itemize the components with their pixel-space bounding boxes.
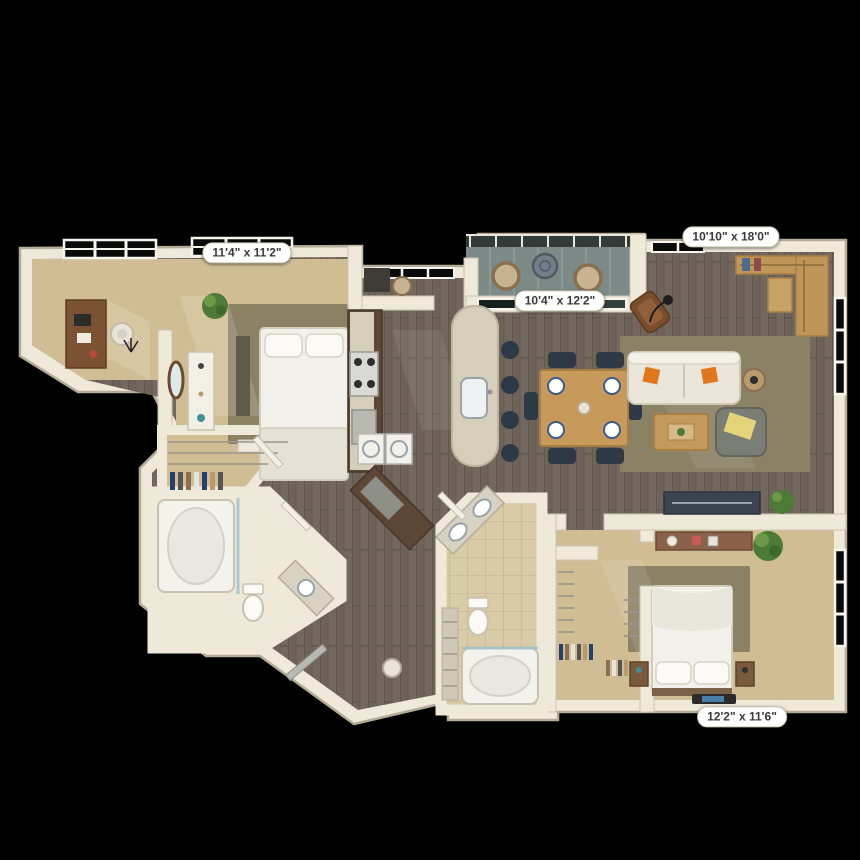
place-setting [604, 422, 620, 438]
laptop-on-floor [692, 694, 736, 704]
throw-pillow [701, 367, 718, 384]
armchair [716, 408, 766, 456]
place-setting [604, 378, 620, 394]
floor-plan-canvas: 11'4" x 11'2" 10'10" x 18'0" 10'4" x 12'… [0, 0, 860, 860]
dimension-label-bedroom-1: 11'4" x 11'2" [202, 242, 291, 263]
potted-plant [202, 293, 228, 319]
nightstand [630, 662, 648, 686]
dresser [656, 532, 752, 550]
dining-chair [548, 352, 576, 368]
dining-chair [596, 448, 624, 464]
bathtub [158, 498, 238, 594]
pillow [265, 334, 302, 357]
wall-closet-top [556, 546, 598, 560]
bar-stool [501, 376, 519, 394]
linen-shelves [442, 608, 458, 700]
wall-living-bedroom2-stub [556, 514, 566, 530]
desk [768, 278, 792, 312]
palm-plant [753, 531, 783, 561]
place-setting [548, 378, 564, 394]
office-window [64, 240, 156, 258]
sink [461, 378, 487, 418]
bench [236, 336, 250, 416]
bathtub [462, 648, 538, 704]
dining-chair [548, 448, 576, 464]
sofa [628, 352, 740, 404]
living-room-right-window [835, 298, 845, 394]
dining-chair [524, 392, 538, 420]
balcony-chair [493, 263, 519, 289]
bar-stool [501, 411, 519, 429]
pillow [306, 334, 343, 357]
pillow [694, 662, 729, 684]
floor-plan-render [0, 0, 860, 860]
potted-plant [770, 490, 794, 514]
stove [350, 352, 378, 396]
toilet [243, 584, 263, 621]
nook-cabinet [364, 268, 390, 292]
papers [77, 333, 91, 343]
toilet [468, 598, 488, 635]
throw-pillow [642, 367, 660, 385]
dimension-label-living-room: 10'10" x 18'0" [682, 226, 779, 247]
floor-medallion [383, 659, 401, 677]
dryer [386, 434, 412, 464]
media-console [664, 492, 760, 514]
kitchen-island [452, 306, 498, 466]
mug [89, 350, 97, 358]
bedroom2-right-window [835, 550, 845, 646]
balcony-chair [575, 265, 601, 291]
dimension-label-bedroom-2: 12'2" x 11'6" [697, 706, 787, 727]
dining-chair [596, 352, 624, 368]
coffee-table [654, 414, 708, 450]
wall-living-bedroom2 [604, 514, 846, 530]
nightstand [736, 662, 754, 686]
laptop [74, 314, 91, 326]
washer [358, 434, 384, 464]
pillow [656, 662, 691, 684]
faucet [488, 390, 493, 395]
place-setting [548, 422, 564, 438]
dimension-label-dining: 10'4" x 12'2" [515, 290, 605, 311]
nook-chair [393, 277, 411, 295]
balcony-table [533, 254, 557, 278]
bar-stool [501, 341, 519, 359]
bed [652, 586, 732, 696]
wall-bedroom2-closet-stub [640, 530, 654, 542]
bar-stool [501, 444, 519, 462]
centerpiece [578, 402, 590, 414]
table-lamp [750, 376, 758, 384]
oval-mirror [169, 362, 183, 398]
wall-kitchen-nook [362, 296, 434, 310]
